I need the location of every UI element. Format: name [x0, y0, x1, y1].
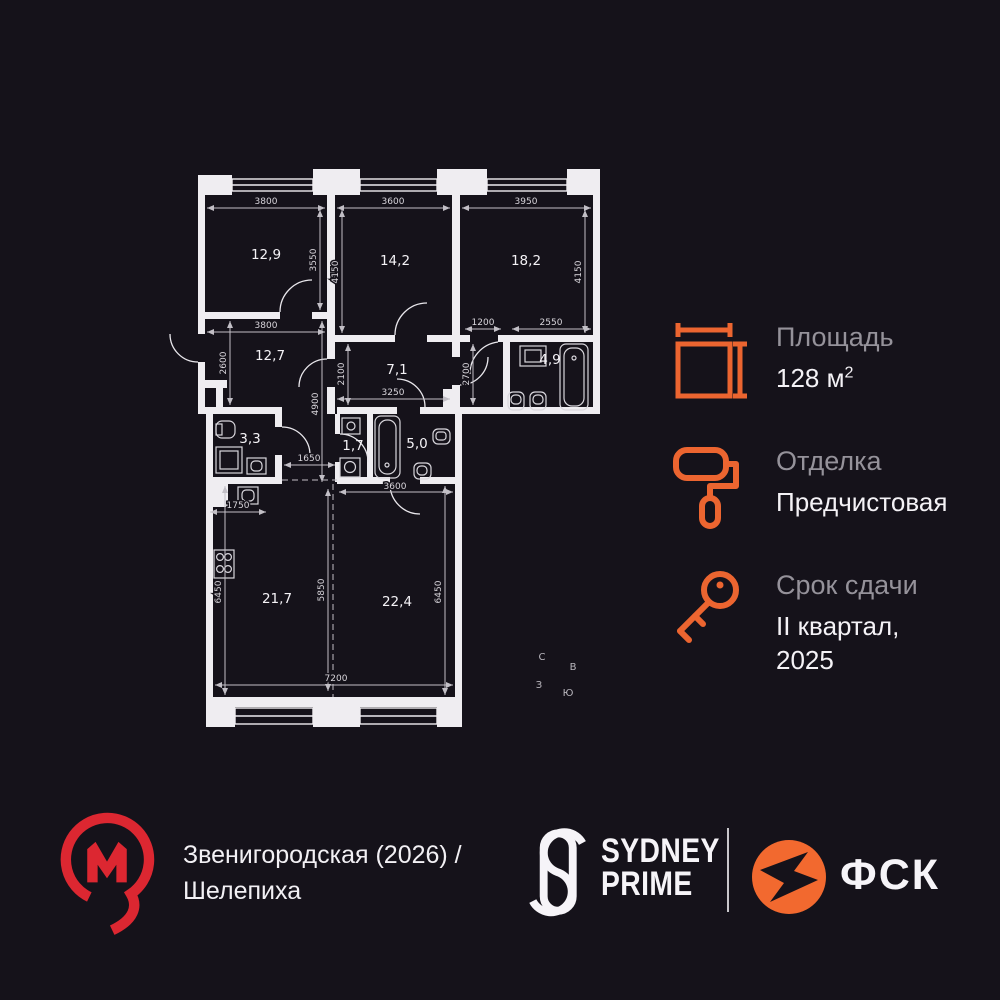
room-area-label: 4,9	[539, 352, 560, 368]
plan-dimension-lines	[207, 208, 591, 695]
sydney-prime-logo-icon	[518, 826, 596, 918]
compass-north: С	[539, 652, 546, 663]
completion-label: Срок сдачи	[776, 570, 961, 601]
dimension-label: 2700	[462, 362, 472, 385]
info-item-finishing: Отделка Предчистовая	[668, 440, 990, 530]
floor-plan: 3800 3600 3950 3550 4150 4150 3800 1200 …	[160, 162, 620, 742]
dimension-label: 3600	[382, 197, 405, 207]
room-area-label: 12,7	[255, 348, 285, 364]
dimension-label: 4150	[331, 260, 341, 283]
dimension-label: 3600	[384, 482, 407, 492]
metro-icon	[55, 806, 159, 938]
dimension-label: 2550	[540, 318, 563, 328]
finishing-value: Предчистовая	[776, 486, 947, 520]
dimension-label: 3800	[255, 197, 278, 207]
plan-dashed-lines	[282, 480, 337, 697]
room-area-label: 1,7	[342, 438, 363, 454]
apartment-card: 3800 3600 3950 3550 4150 4150 3800 1200 …	[0, 0, 1000, 1000]
metro-station-name: Звенигородская (2026) / Шелепиха	[183, 838, 495, 909]
room-area-label: 3,3	[239, 431, 260, 447]
dimension-label: 3950	[515, 197, 538, 207]
area-measure-icon	[668, 316, 748, 406]
dimension-label: 1650	[298, 454, 321, 464]
compass-west: З	[536, 680, 542, 691]
dimension-label: 2600	[219, 351, 229, 374]
dimension-label: 3800	[255, 321, 278, 331]
dimension-label: 3550	[309, 248, 319, 271]
dimension-label: 1200	[472, 318, 495, 328]
dimension-label: 5850	[317, 578, 327, 601]
info-panel: Площадь 128 м2 Отделка Предчистовая	[668, 316, 990, 712]
compass-rose: С В З Ю	[536, 652, 577, 699]
dimension-label: 2100	[337, 362, 347, 385]
dimension-label: 6450	[214, 580, 224, 603]
dimension-label: 3250	[382, 388, 405, 398]
room-area-label: 22,4	[382, 594, 412, 610]
compass-east: В	[570, 662, 577, 673]
room-area-label: 5,0	[406, 436, 427, 452]
sydney-prime-wordmark: SYDNEY PRIME	[601, 835, 720, 901]
room-area-label: 7,1	[386, 362, 407, 378]
room-area-label: 14,2	[380, 253, 410, 269]
fsk-wordmark: ФСК	[840, 851, 940, 900]
room-area-label: 21,7	[262, 591, 292, 607]
dimension-label: 4150	[574, 260, 584, 283]
dimension-label: 7200	[325, 674, 348, 684]
dimension-label: 6450	[434, 580, 444, 603]
compass-south: Ю	[563, 688, 574, 699]
room-area-label: 12,9	[251, 247, 281, 263]
dimension-label: 1750	[227, 501, 250, 511]
finishing-label: Отделка	[776, 446, 947, 477]
key-icon	[668, 564, 748, 654]
room-area-label: 18,2	[511, 253, 541, 269]
completion-value: II квартал, 2025	[776, 610, 961, 678]
info-item-completion: Срок сдачи II квартал, 2025	[668, 564, 990, 678]
info-item-area: Площадь 128 м2	[668, 316, 990, 406]
fsk-logo-icon	[750, 838, 828, 916]
plan-dimension-labels: 3800 3600 3950 3550 4150 4150 3800 1200 …	[214, 197, 584, 684]
area-label: Площадь	[776, 322, 894, 353]
dimension-label: 4900	[311, 392, 321, 415]
logo-divider	[727, 828, 729, 912]
area-value: 128 м2	[776, 362, 894, 396]
paint-roller-icon	[668, 440, 748, 530]
